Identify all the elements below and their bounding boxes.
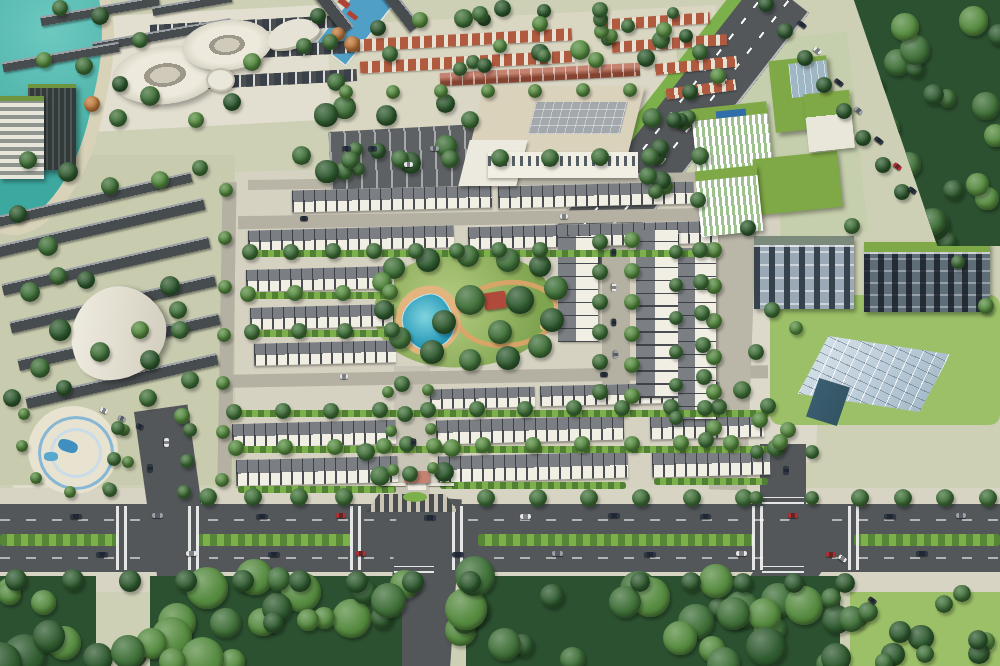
- tree: [219, 183, 233, 197]
- tree: [637, 49, 655, 67]
- tree: [140, 350, 160, 370]
- tree: [532, 16, 548, 32]
- tree: [953, 585, 970, 602]
- tree: [327, 439, 343, 455]
- tree: [537, 49, 551, 63]
- tree: [49, 319, 71, 341]
- tree: [835, 573, 855, 593]
- tree: [322, 34, 338, 50]
- tree: [449, 243, 465, 259]
- tree: [216, 425, 230, 439]
- tree: [648, 184, 663, 199]
- car: [452, 552, 464, 557]
- car: [916, 551, 928, 556]
- car: [404, 162, 413, 167]
- car: [164, 438, 169, 447]
- townhouse-row: [232, 420, 397, 448]
- tree: [935, 595, 953, 613]
- tree: [706, 242, 722, 258]
- tree: [642, 108, 662, 128]
- tree: [592, 354, 608, 370]
- tree: [656, 22, 672, 38]
- tree: [639, 167, 657, 185]
- tree: [16, 440, 28, 452]
- campus-green-roof-low: [752, 151, 842, 216]
- tree: [517, 401, 533, 417]
- tree: [951, 255, 965, 269]
- tree: [64, 486, 76, 498]
- tree: [91, 7, 109, 25]
- tree: [916, 645, 934, 663]
- tree: [844, 218, 860, 234]
- tree: [883, 210, 904, 231]
- car: [552, 551, 563, 556]
- tree: [103, 483, 117, 497]
- tree: [382, 284, 398, 300]
- boulevard-median: [196, 534, 352, 546]
- tree: [748, 344, 764, 360]
- tree: [750, 445, 764, 459]
- tree: [882, 206, 915, 239]
- tree: [592, 264, 608, 280]
- tree: [243, 53, 261, 71]
- tree: [746, 627, 786, 666]
- hedge-strip: [440, 482, 626, 489]
- tree: [177, 485, 191, 499]
- tree: [292, 146, 311, 165]
- tree: [371, 583, 406, 618]
- car: [612, 319, 617, 327]
- tree: [192, 160, 208, 176]
- tree: [966, 173, 989, 196]
- tree: [560, 647, 584, 666]
- tree: [669, 411, 683, 425]
- tree: [692, 242, 708, 258]
- tree: [75, 57, 93, 75]
- boulevard-median: [0, 534, 118, 546]
- gate-arm: [428, 483, 454, 486]
- tree: [699, 564, 733, 598]
- tree: [454, 9, 473, 28]
- car: [700, 514, 711, 519]
- car: [736, 551, 747, 556]
- tree: [394, 376, 410, 392]
- tree: [816, 77, 832, 93]
- tree: [38, 236, 58, 256]
- tree: [875, 157, 891, 173]
- car: [600, 372, 608, 377]
- tree: [215, 473, 229, 487]
- tree: [159, 648, 186, 666]
- tree: [84, 96, 100, 112]
- tree: [525, 437, 541, 453]
- tree: [624, 436, 640, 452]
- car: [520, 514, 531, 519]
- tree: [5, 569, 27, 591]
- tree: [453, 62, 467, 76]
- tree: [641, 148, 659, 166]
- tree: [412, 12, 428, 28]
- car: [892, 162, 902, 171]
- playground-equipment: [44, 452, 58, 461]
- tree: [897, 152, 921, 176]
- tree: [894, 489, 912, 507]
- tree: [244, 324, 260, 340]
- tree: [218, 280, 232, 294]
- tree: [180, 454, 194, 468]
- car: [608, 513, 620, 518]
- tree: [669, 245, 683, 259]
- car: [412, 439, 417, 447]
- tree: [315, 160, 339, 184]
- tree: [979, 489, 997, 507]
- car: [70, 514, 82, 519]
- hedge-strip: [250, 250, 720, 257]
- tree: [199, 488, 217, 506]
- tree: [691, 147, 709, 165]
- tree: [111, 635, 145, 666]
- tree: [496, 346, 520, 370]
- hedge-strip: [252, 330, 396, 337]
- tree: [851, 489, 869, 507]
- tree: [461, 111, 479, 129]
- car: [884, 514, 896, 519]
- tree: [481, 84, 495, 98]
- townhouse-row: [250, 304, 395, 330]
- tree: [432, 310, 456, 334]
- crosswalk: [350, 506, 366, 570]
- tree: [920, 209, 946, 235]
- tree: [402, 571, 424, 593]
- tree: [131, 321, 149, 339]
- tree: [420, 340, 444, 364]
- tree: [18, 408, 30, 420]
- tree: [624, 232, 640, 248]
- tree: [422, 384, 434, 396]
- tree: [592, 294, 608, 310]
- car: [424, 515, 436, 520]
- tree: [426, 438, 442, 454]
- tree: [733, 573, 753, 593]
- tree: [183, 423, 197, 437]
- car: [612, 249, 617, 257]
- tree: [797, 50, 813, 66]
- tree: [297, 609, 319, 631]
- tree: [372, 402, 388, 418]
- tree: [9, 205, 27, 223]
- tree: [335, 488, 353, 506]
- tree: [632, 489, 650, 507]
- tree: [111, 421, 125, 435]
- tree: [459, 571, 481, 593]
- school-skylight: [528, 102, 628, 134]
- tree: [711, 399, 727, 415]
- car: [96, 552, 108, 557]
- tree: [223, 93, 241, 111]
- tree: [805, 491, 819, 505]
- tree: [56, 380, 72, 396]
- tree: [109, 109, 127, 127]
- car: [560, 214, 568, 219]
- tree: [263, 612, 284, 633]
- tree: [160, 276, 180, 296]
- crosswalk: [752, 506, 766, 570]
- tree: [296, 38, 312, 54]
- tree: [20, 282, 40, 302]
- tree: [752, 412, 768, 428]
- tree: [427, 462, 439, 474]
- tree: [698, 432, 714, 448]
- tree: [706, 349, 722, 365]
- tree: [532, 242, 548, 258]
- tree: [132, 32, 148, 48]
- tree: [217, 328, 231, 342]
- tree: [101, 177, 119, 195]
- tree: [434, 84, 448, 98]
- tree: [984, 124, 1000, 147]
- tree: [592, 324, 608, 340]
- tree: [621, 19, 635, 33]
- tree: [291, 323, 307, 339]
- car: [644, 552, 656, 557]
- tree: [972, 92, 999, 119]
- aerial-masterplan-scene: [0, 0, 1000, 666]
- tree: [90, 342, 110, 362]
- tree: [784, 573, 804, 593]
- tree: [875, 653, 894, 666]
- tree: [748, 598, 781, 631]
- tree: [943, 180, 963, 200]
- tree: [760, 398, 776, 414]
- tree: [968, 630, 988, 650]
- tree: [335, 285, 351, 301]
- tree: [717, 597, 750, 630]
- tree: [49, 267, 67, 285]
- tree: [805, 445, 819, 459]
- tree: [119, 570, 141, 592]
- tree: [52, 0, 68, 16]
- car: [788, 513, 798, 518]
- tree: [624, 326, 640, 342]
- tree: [290, 488, 308, 506]
- tree: [576, 83, 590, 97]
- car: [784, 466, 789, 475]
- tree: [107, 452, 121, 466]
- tree: [693, 274, 709, 290]
- tree: [723, 435, 739, 451]
- tree: [382, 386, 394, 398]
- tree: [630, 572, 650, 592]
- tree: [323, 403, 339, 419]
- tree: [493, 39, 507, 53]
- tree: [139, 389, 157, 407]
- tree: [624, 357, 640, 373]
- crosswalk: [188, 506, 202, 570]
- boulevard-median: [854, 534, 1000, 546]
- tree: [310, 8, 326, 24]
- tree: [695, 337, 711, 353]
- tree: [275, 403, 291, 419]
- gate-median-island: [403, 492, 427, 502]
- car: [152, 513, 163, 518]
- tree: [169, 301, 187, 319]
- tree: [472, 6, 488, 22]
- tree: [30, 472, 42, 484]
- tree: [494, 0, 511, 17]
- school-facade-windows: [488, 152, 638, 178]
- tree: [122, 456, 134, 468]
- tree: [669, 378, 683, 392]
- tree: [469, 401, 485, 417]
- tree: [397, 406, 413, 422]
- car: [340, 374, 348, 379]
- car: [368, 146, 377, 151]
- tree: [623, 83, 637, 97]
- tree: [36, 52, 52, 68]
- crosswalk: [848, 506, 862, 570]
- tree: [188, 112, 204, 128]
- tree: [19, 151, 37, 169]
- tree: [240, 286, 256, 302]
- tree: [30, 358, 50, 378]
- tree: [332, 599, 371, 638]
- tree: [592, 384, 608, 400]
- tree: [344, 36, 360, 52]
- tree: [289, 570, 311, 592]
- tree: [228, 440, 244, 456]
- tree: [175, 570, 197, 592]
- car: [268, 552, 280, 557]
- tree: [733, 381, 751, 399]
- tree: [690, 192, 706, 208]
- tree: [83, 643, 113, 666]
- car: [256, 514, 268, 519]
- car: [356, 551, 366, 556]
- tree: [978, 298, 994, 314]
- tree: [528, 334, 552, 358]
- car: [614, 351, 619, 359]
- tree: [459, 349, 481, 371]
- tree: [210, 608, 241, 639]
- tree: [863, 76, 885, 98]
- car: [826, 552, 836, 557]
- tree: [242, 244, 258, 260]
- boulevard-median: [478, 534, 754, 546]
- tree: [541, 149, 559, 167]
- tree: [696, 369, 712, 385]
- tree: [566, 400, 582, 416]
- tree: [408, 243, 424, 259]
- tree: [441, 150, 459, 168]
- tree: [443, 439, 461, 457]
- tree: [666, 112, 682, 128]
- hedge-strip: [248, 292, 394, 299]
- tree: [570, 40, 590, 60]
- tree: [402, 466, 418, 482]
- tree: [529, 489, 547, 507]
- car: [797, 19, 808, 29]
- tree: [772, 434, 788, 450]
- tree: [140, 86, 160, 106]
- tree: [420, 402, 436, 418]
- car: [430, 146, 439, 151]
- car: [300, 216, 308, 221]
- tree: [540, 308, 564, 332]
- tree: [669, 345, 683, 359]
- tree: [592, 234, 608, 250]
- tree: [387, 464, 399, 476]
- tree: [789, 321, 803, 335]
- tree: [376, 105, 397, 126]
- tree: [77, 271, 95, 289]
- tree: [3, 389, 21, 407]
- townhouse-row: [254, 340, 397, 366]
- tree: [374, 300, 394, 320]
- tree: [894, 184, 910, 200]
- tree: [624, 388, 640, 404]
- tree: [749, 491, 763, 505]
- car: [956, 513, 966, 518]
- tree: [491, 242, 507, 258]
- tree: [544, 276, 568, 300]
- tree: [112, 76, 128, 92]
- car: [148, 464, 153, 473]
- tree: [337, 323, 353, 339]
- tree: [682, 84, 698, 100]
- car: [874, 135, 885, 145]
- tree: [891, 13, 919, 41]
- clubhouse-red-roof: [483, 291, 507, 311]
- tree: [588, 52, 604, 68]
- tree: [62, 569, 84, 591]
- tree: [710, 68, 726, 84]
- crosswalk: [116, 506, 130, 570]
- tree: [425, 423, 437, 435]
- tree: [506, 286, 534, 314]
- hedge-strip: [654, 478, 768, 485]
- playground-ring-inner: [50, 428, 102, 478]
- crosswalk: [762, 566, 804, 573]
- tree: [540, 584, 564, 608]
- tree: [385, 425, 397, 437]
- tree: [232, 570, 254, 592]
- car: [186, 551, 197, 556]
- tree: [346, 571, 368, 593]
- tree: [341, 151, 359, 169]
- tree: [339, 85, 353, 99]
- car: [612, 284, 617, 292]
- tree: [314, 103, 337, 126]
- tree: [764, 302, 780, 318]
- tree: [382, 46, 398, 62]
- tree: [181, 371, 199, 389]
- tree: [151, 171, 169, 189]
- car: [342, 146, 351, 151]
- tree: [384, 322, 400, 338]
- tree: [58, 162, 78, 182]
- crosswalk: [762, 497, 804, 504]
- tree: [817, 5, 836, 24]
- car: [336, 513, 346, 518]
- tree: [174, 408, 190, 424]
- tree: [876, 116, 900, 140]
- tree: [386, 85, 400, 99]
- tree: [455, 285, 485, 315]
- tree: [889, 621, 911, 643]
- townhouse-row: [438, 452, 629, 483]
- tree: [357, 443, 375, 461]
- tree: [267, 567, 290, 590]
